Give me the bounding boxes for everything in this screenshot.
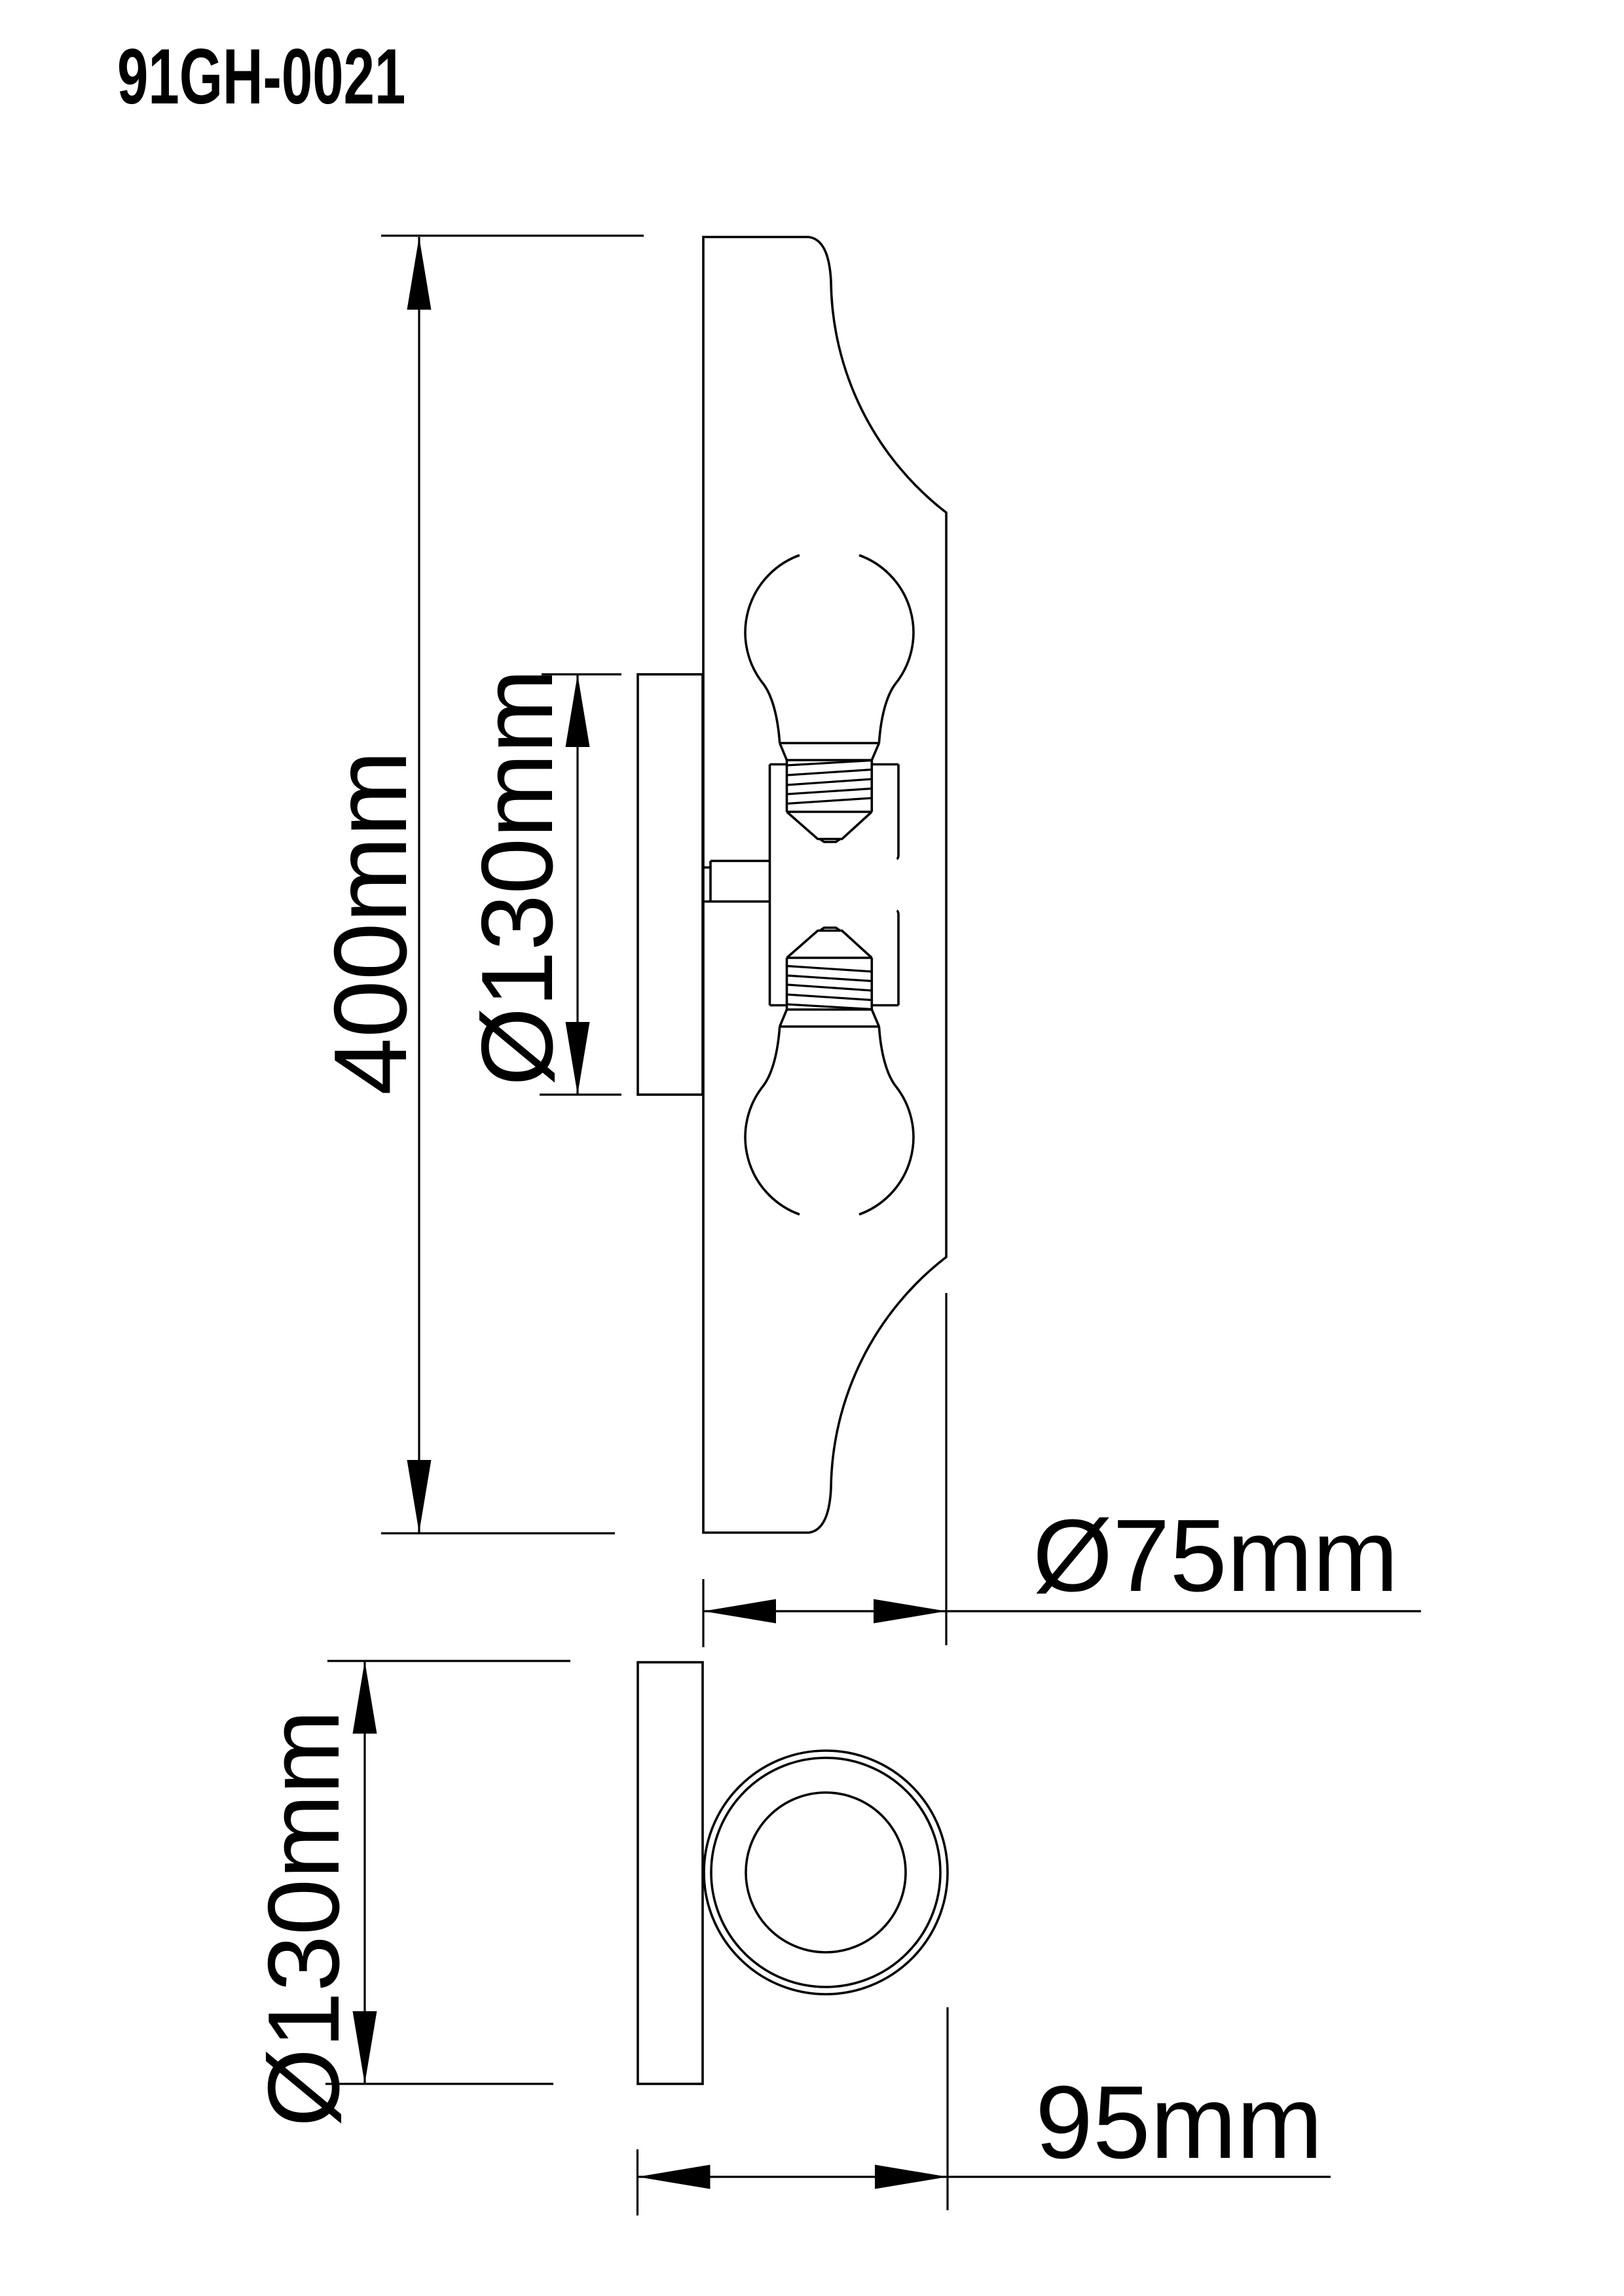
svg-text:Ø75mm: Ø75mm	[1033, 1499, 1398, 1613]
svg-text:95mm: 95mm	[1035, 2065, 1323, 2180]
svg-text:91GH-0021: 91GH-0021	[117, 33, 405, 121]
svg-text:400mm: 400mm	[313, 750, 428, 1095]
svg-text:Ø130mm: Ø130mm	[247, 1710, 360, 2127]
svg-text:Ø130mm: Ø130mm	[460, 669, 574, 1086]
